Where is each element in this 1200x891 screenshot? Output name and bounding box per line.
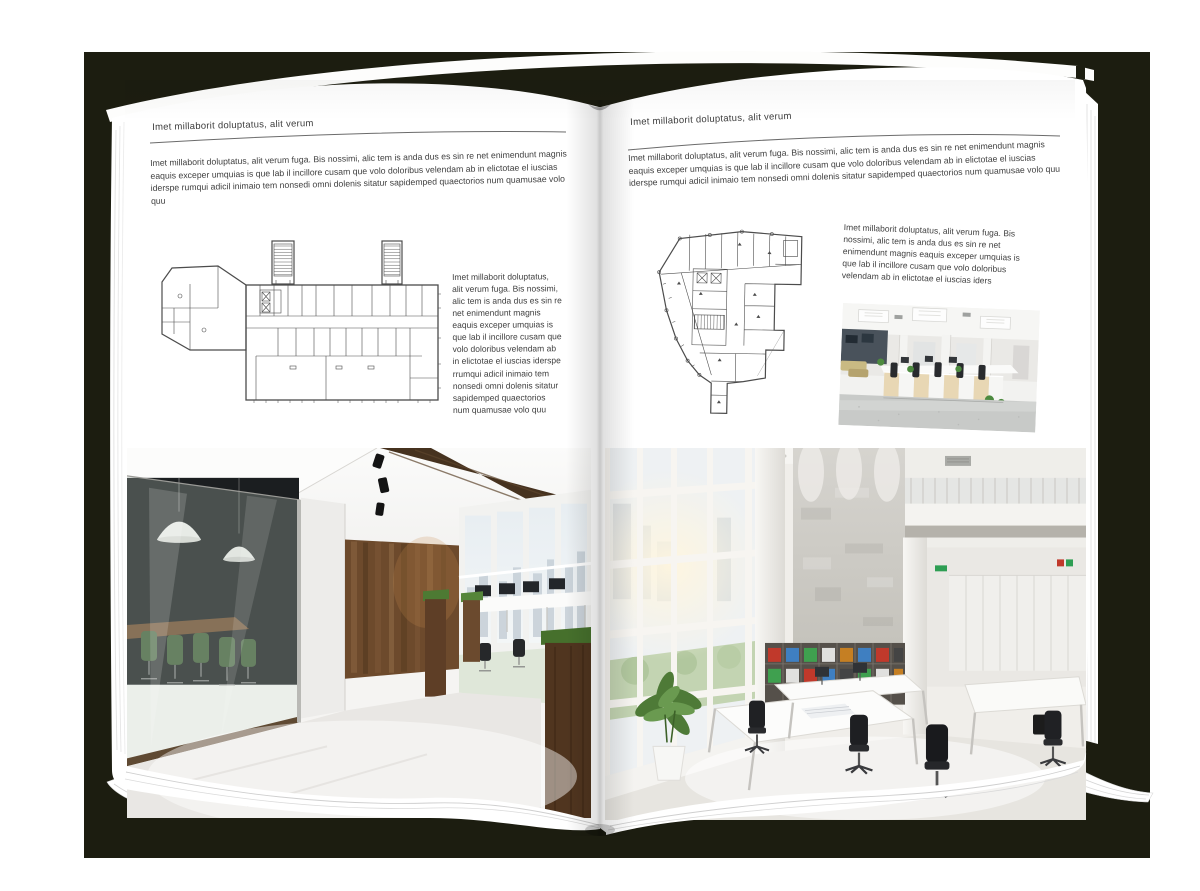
left-page-intro: Imet millaborit doluptatus, alit verum f…: [150, 147, 575, 207]
right-page-side-text: Imet millaborit doluptatus, alit verum f…: [842, 221, 1024, 288]
floor-plan-left: [160, 238, 444, 410]
office-photo-small: [838, 303, 1040, 432]
magazine-mockup: Imet millaborit doluptatus, alit verum I…: [0, 0, 1200, 891]
left-page-side-text: Imet millaborit doluptatus, alit verum f…: [452, 270, 563, 416]
office-photo-left: [127, 448, 591, 818]
floor-plan-right: [647, 224, 812, 421]
office-photo-right: [605, 448, 1086, 820]
